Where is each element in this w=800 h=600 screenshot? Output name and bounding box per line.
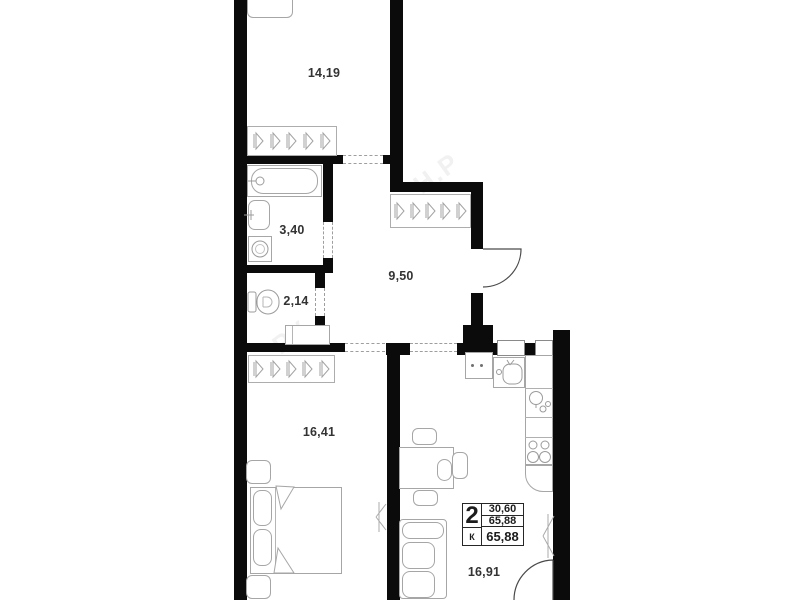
washer-drum-icon <box>250 238 270 260</box>
wardrobe-hatch-icon <box>252 359 265 379</box>
sofa-armrest <box>402 522 444 539</box>
pillow <box>253 490 272 526</box>
wardrobe-hatch-icon <box>439 201 452 221</box>
wall-hall-right-upper <box>471 192 483 249</box>
wall-toilet-right-upper <box>315 273 325 288</box>
door-opening-toilet <box>315 288 325 316</box>
faucet-icon <box>248 170 270 192</box>
wardrobe <box>390 194 471 228</box>
opening-kitchen <box>410 343 457 352</box>
blanket-fold-icon <box>272 483 298 511</box>
cabinet <box>247 0 293 18</box>
wardrobe-hatch-icon <box>269 131 282 151</box>
toilet <box>247 288 281 316</box>
nightstand <box>246 575 271 599</box>
area-value-total: 65,88 <box>481 527 523 545</box>
wardrobe-hatch-icon <box>302 131 315 151</box>
kitchen-counter-corner <box>465 352 493 379</box>
wall-outer-left <box>234 0 247 600</box>
fridge <box>525 465 553 492</box>
wall-bathroom-right-upper <box>323 164 333 222</box>
wardrobe <box>248 355 335 383</box>
counter-dot-icon <box>471 364 474 367</box>
opening-room-top <box>343 155 383 164</box>
nightstand <box>246 460 271 484</box>
opening-bedroom <box>345 343 385 352</box>
wall-stub <box>383 155 390 164</box>
kitchen-sink-icon <box>495 359 525 386</box>
wardrobe-hatch-icon <box>252 131 265 151</box>
chair <box>437 459 452 481</box>
blanket-fold-icon <box>271 546 297 575</box>
chair <box>413 490 438 506</box>
chair <box>452 452 468 479</box>
wardrobe-hatch-icon <box>301 359 314 379</box>
wardrobe-hatch-icon <box>319 131 332 151</box>
radiator-symbol <box>371 501 388 533</box>
wardrobe-hatch-icon <box>269 359 282 379</box>
balcony-door-arc <box>506 556 558 600</box>
kitchen-cabinet <box>535 340 553 356</box>
stove-burners-icon <box>525 437 553 465</box>
wardrobe-hatch-icon <box>285 131 298 151</box>
room-area-label: 16,41 <box>303 425 335 439</box>
wardrobe-hatch-icon <box>409 201 422 221</box>
counter-divider <box>525 417 553 418</box>
wall-hall-top <box>403 182 483 192</box>
room-area-label: 16,91 <box>468 565 500 579</box>
floor-plan: Н.Р РУ 14,19 3,40 <box>0 0 800 600</box>
wardrobe-hatch-icon <box>318 359 331 379</box>
wardrobe-hatch-icon <box>285 359 298 379</box>
wall-bathroom-right-lower <box>323 258 333 273</box>
sofa-cushion <box>402 542 435 569</box>
wall-room-top-bottom <box>247 155 343 164</box>
wall-bath-toilet-divider <box>247 265 323 273</box>
wardrobe <box>247 126 337 156</box>
room-area-label: 2,14 <box>283 294 308 308</box>
wardrobe-hatch-icon <box>455 201 468 221</box>
counter-divider <box>525 388 553 389</box>
rooms-count: 2 <box>463 504 481 527</box>
room-area-label: 3,40 <box>279 223 304 237</box>
wardrobe-hatch-icon <box>393 201 406 221</box>
rooms-letter: К <box>463 527 481 545</box>
room-area-label: 9,50 <box>388 269 413 283</box>
watermark-text: Н.Р <box>408 146 466 200</box>
cabinet-divider <box>292 326 293 344</box>
counter-dot-icon <box>480 364 483 367</box>
wall-room-top-right <box>390 0 403 192</box>
room-area-label: 14,19 <box>308 66 340 80</box>
kitchen-cabinet <box>497 340 525 356</box>
wall-entry-stub <box>463 325 493 343</box>
door-opening-bathroom <box>323 222 333 258</box>
faucet-icon <box>244 208 256 222</box>
area-value-mid: 65,88 <box>481 516 523 528</box>
wardrobe-hatch-icon <box>424 201 437 221</box>
pillow <box>253 529 272 566</box>
entrance-door-arc <box>467 245 527 297</box>
chair <box>412 428 437 445</box>
kitchen-appliance-icon <box>527 390 553 416</box>
window-symbol <box>539 512 555 560</box>
apartment-info-table: 2 30,60 65,88 К 65,88 <box>462 503 524 546</box>
sofa-cushion <box>402 571 435 598</box>
